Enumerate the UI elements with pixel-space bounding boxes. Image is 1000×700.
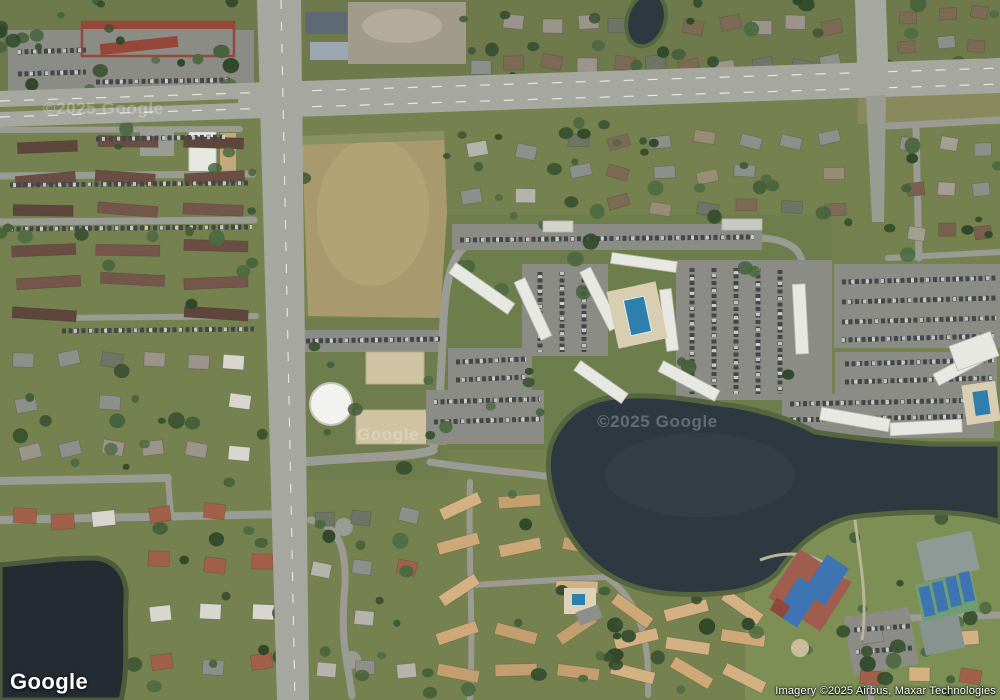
google-watermark: ©2025 Google (597, 412, 718, 431)
google-watermark: ©2025 Google (43, 99, 164, 118)
imagery-attribution: Imagery ©2025 Airbus, Maxar Technologies (775, 685, 996, 697)
community-pool (572, 594, 585, 605)
vacant-field (302, 131, 447, 318)
satellite-imagery-canvas: ©2025 Google ©2025 Google Google (0, 0, 1000, 700)
playground (791, 639, 809, 657)
water-tank (310, 383, 352, 425)
canopy-structure (305, 12, 347, 34)
map-viewport[interactable]: ©2025 Google ©2025 Google Google Google … (0, 0, 1000, 700)
google-watermark: Google (357, 425, 419, 444)
google-logo[interactable]: Google (10, 669, 88, 695)
dirt-lot (348, 2, 466, 64)
